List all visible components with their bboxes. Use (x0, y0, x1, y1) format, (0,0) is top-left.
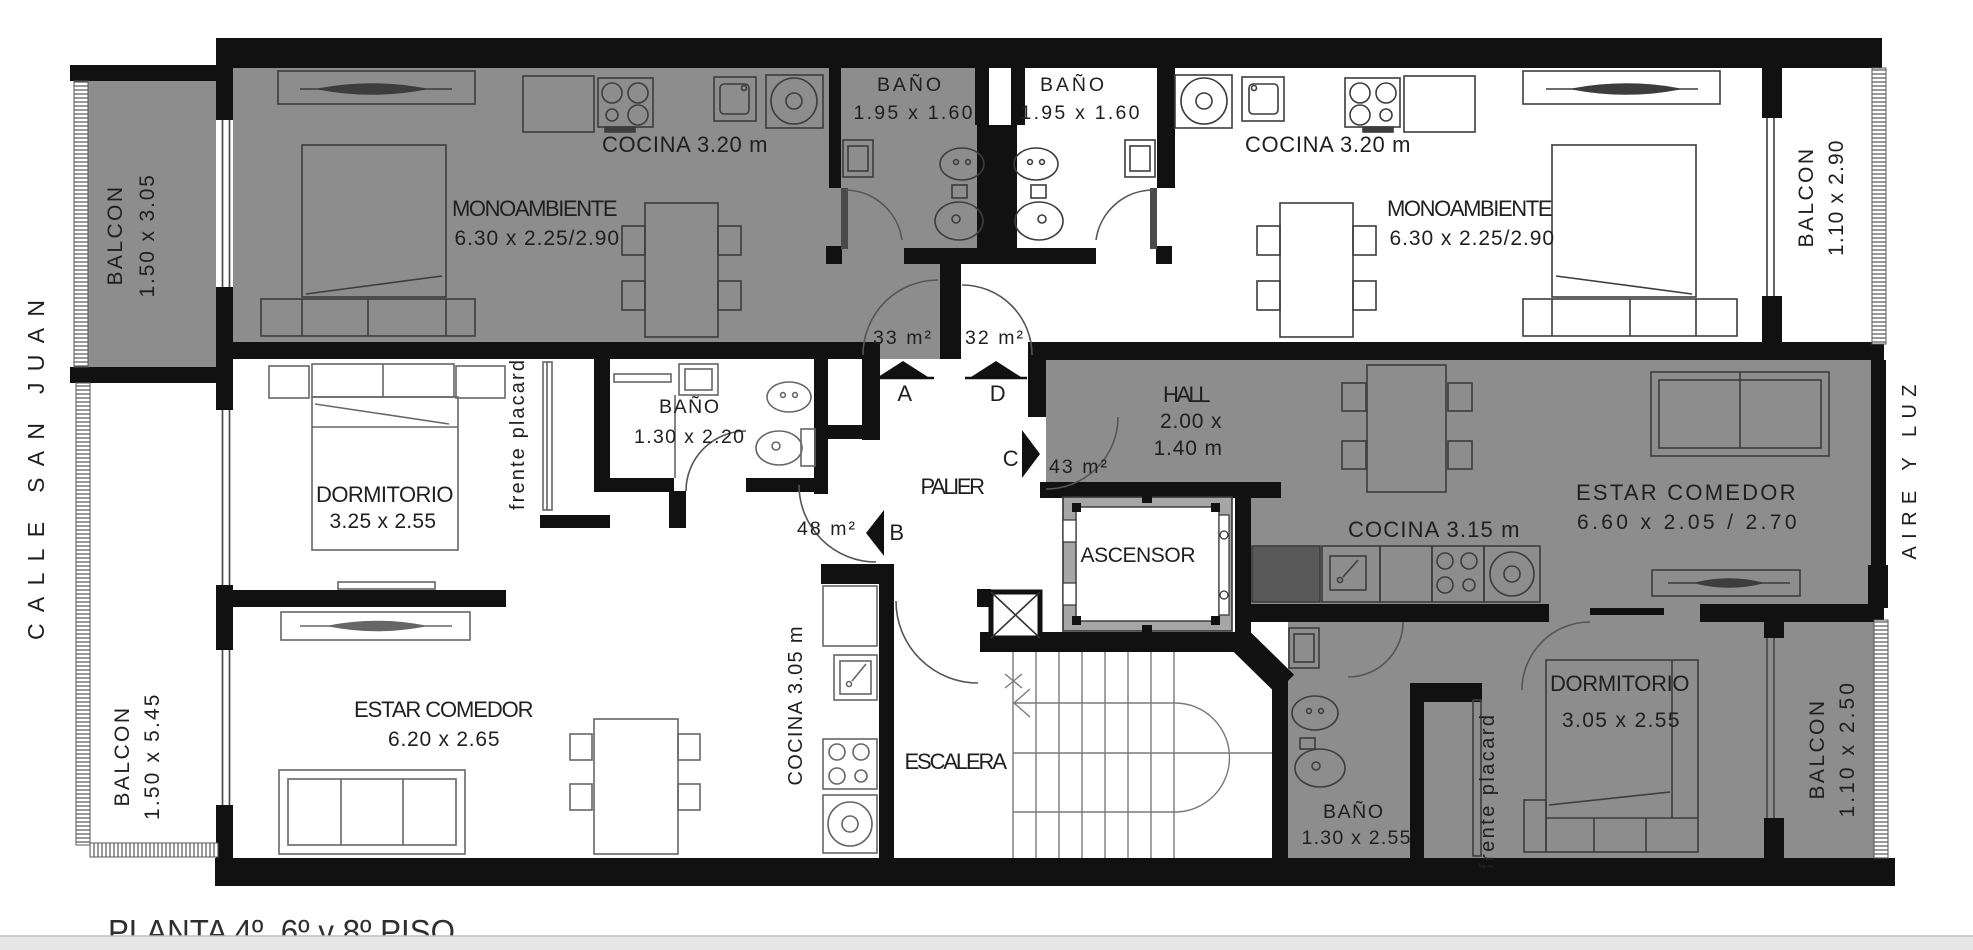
svg-text:BAÑO: BAÑO (877, 72, 941, 96)
svg-text:6.60 x 2.05 / 2.70: 6.60 x 2.05 / 2.70 (1577, 511, 1797, 534)
svg-text:COCINA 3.15 m: COCINA 3.15 m (1348, 517, 1520, 542)
svg-text:frente placard: frente placard (507, 360, 529, 510)
svg-text:A: A (897, 381, 912, 406)
svg-text:1.10 x 2.50: 1.10 x 2.50 (1836, 683, 1859, 818)
svg-text:1.30 x 2.55: 1.30 x 2.55 (1302, 827, 1411, 849)
svg-text:C A L L E S A N J U A N: C A L L E S A N J U A N (23, 300, 49, 640)
svg-text:MONOAMBIENTE: MONOAMBIENTE (1387, 196, 1553, 221)
svg-text:1.50 x 3.05: 1.50 x 3.05 (136, 175, 159, 298)
svg-text:COCINA 3.20 m: COCINA 3.20 m (602, 132, 768, 157)
svg-text:1.40 m: 1.40 m (1154, 437, 1223, 460)
svg-text:D: D (990, 381, 1006, 406)
svg-text:6.30 x 2.25/2.90: 6.30 x 2.25/2.90 (1390, 227, 1555, 250)
svg-text:DORMITORIO: DORMITORIO (316, 482, 454, 507)
svg-text:2.00 x: 2.00 x (1160, 410, 1222, 433)
svg-text:COCINA 3.05 m: COCINA 3.05 m (785, 627, 807, 786)
svg-text:6.30 x 2.25/2.90: 6.30 x 2.25/2.90 (455, 227, 620, 250)
svg-text:A I R E Y L U Z: A I R E Y L U Z (1899, 385, 1921, 560)
svg-text:ASCENSOR: ASCENSOR (1081, 544, 1196, 567)
svg-text:BAÑO: BAÑO (659, 394, 719, 418)
svg-text:1.30 x 2.20: 1.30 x 2.20 (634, 426, 744, 448)
svg-text:1.95 x 1.60: 1.95 x 1.60 (1021, 102, 1140, 124)
svg-text:1.95 x 1.60: 1.95 x 1.60 (854, 102, 973, 124)
svg-text:COCINA 3.20 m: COCINA 3.20 m (1245, 132, 1411, 157)
svg-text:ESTAR COMEDOR: ESTAR COMEDOR (354, 697, 534, 722)
svg-text:MONOAMBIENTE: MONOAMBIENTE (452, 196, 618, 221)
svg-text:frente placard: frente placard (1477, 715, 1499, 869)
svg-text:DORMITORIO: DORMITORIO (1550, 671, 1690, 696)
svg-text:B: B (889, 520, 904, 545)
svg-text:3.25 x 2.55: 3.25 x 2.55 (330, 510, 437, 533)
svg-text:1.50 x 5.45: 1.50 x 5.45 (141, 694, 164, 820)
svg-text:BAÑO: BAÑO (1323, 799, 1383, 823)
svg-text:BAÑO: BAÑO (1040, 72, 1104, 96)
svg-text:ESTAR COMEDOR: ESTAR COMEDOR (1576, 480, 1796, 505)
svg-text:1.10 x 2.90: 1.10 x 2.90 (1825, 140, 1848, 256)
svg-text:PALIER: PALIER (921, 474, 986, 499)
svg-text:6.20 x 2.65: 6.20 x 2.65 (388, 728, 500, 751)
svg-text:3.05 x 2.55: 3.05 x 2.55 (1562, 709, 1680, 732)
svg-text:HALL: HALL (1163, 382, 1211, 407)
svg-text:ESCALERA: ESCALERA (905, 749, 1008, 774)
svg-text:C: C (1003, 446, 1019, 471)
